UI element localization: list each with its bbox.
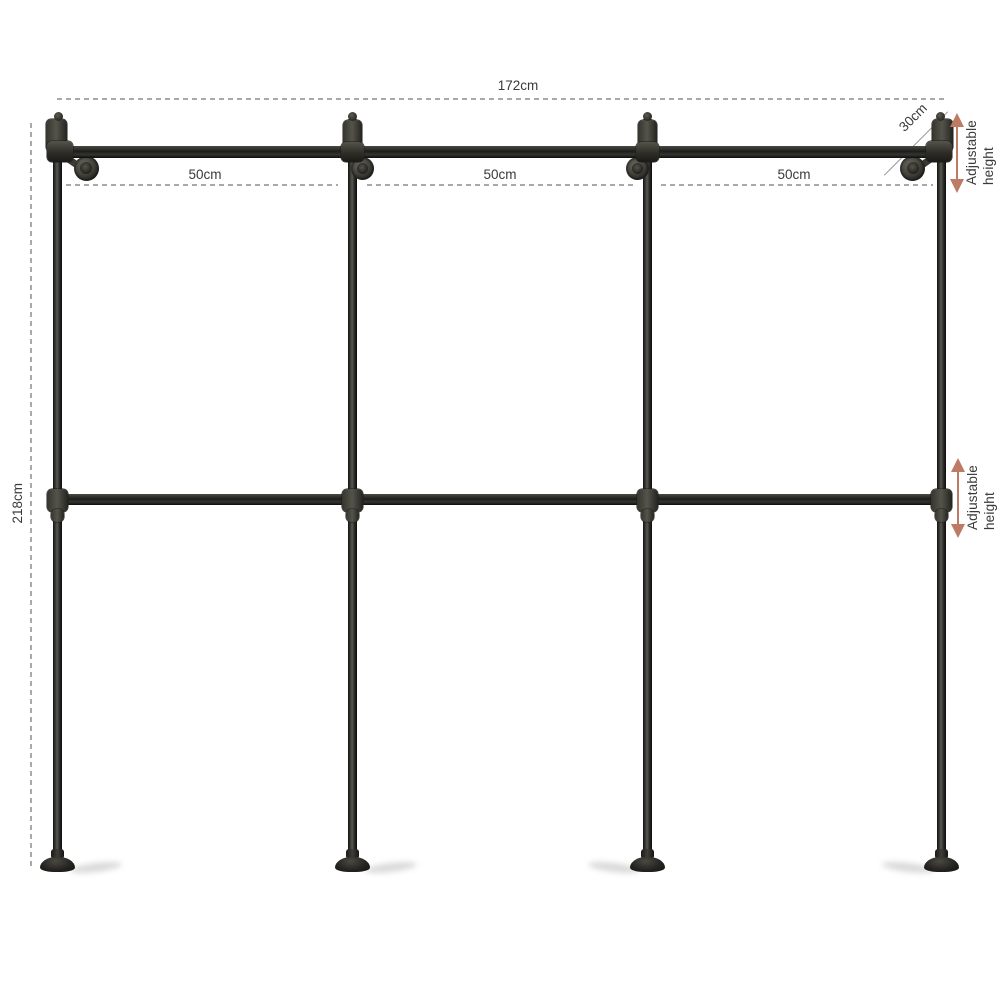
flange-hub: [357, 163, 368, 174]
top-rail-pipe: [57, 146, 945, 158]
rail-clamp-fitting: [636, 142, 659, 162]
rail-clamp-fitting: [341, 142, 364, 162]
middle-rail-pipe: [57, 494, 945, 505]
section-width-label: 50cm: [175, 167, 235, 182]
rail-clamp-fitting: [47, 141, 73, 162]
width-dimension-label: 172cm: [468, 78, 568, 93]
flange-hub: [632, 163, 643, 174]
section-width-label: 50cm: [764, 167, 824, 182]
section-width-label: 50cm: [470, 167, 530, 182]
width-dimension-line: [57, 98, 947, 100]
pipe-union-fitting: [641, 509, 654, 522]
flange-hub: [907, 162, 919, 174]
depth-dimension-label: 30cm: [889, 93, 938, 142]
set-screw-knob: [936, 112, 945, 121]
pipe-union-fitting: [51, 509, 64, 522]
adjustable-height-label-middle: Adjustable height: [963, 452, 1000, 544]
set-screw-knob: [643, 112, 652, 121]
section-width-line: [367, 184, 633, 186]
floor-flange-foot: [630, 857, 665, 872]
pipe-union-fitting: [346, 509, 359, 522]
section-width-line: [66, 184, 338, 186]
pipe-union-fitting: [935, 509, 948, 522]
foot-shadow: [365, 860, 418, 875]
set-screw-knob: [348, 112, 357, 121]
floor-flange-foot: [924, 857, 959, 872]
adjustable-height-label-top: Adjustable height: [962, 107, 999, 199]
foot-shadow: [70, 860, 123, 875]
floor-flange-foot: [335, 857, 370, 872]
height-dimension-label: 218cm: [2, 465, 32, 541]
floor-flange-foot: [40, 857, 75, 872]
clothing-rack-dimension-diagram: 172cm 218cm 30cm 50cm 50cm 50cm Adjustab…: [0, 0, 1000, 1000]
section-width-line: [661, 184, 933, 186]
flange-hub: [80, 162, 92, 174]
set-screw-knob: [54, 112, 63, 121]
